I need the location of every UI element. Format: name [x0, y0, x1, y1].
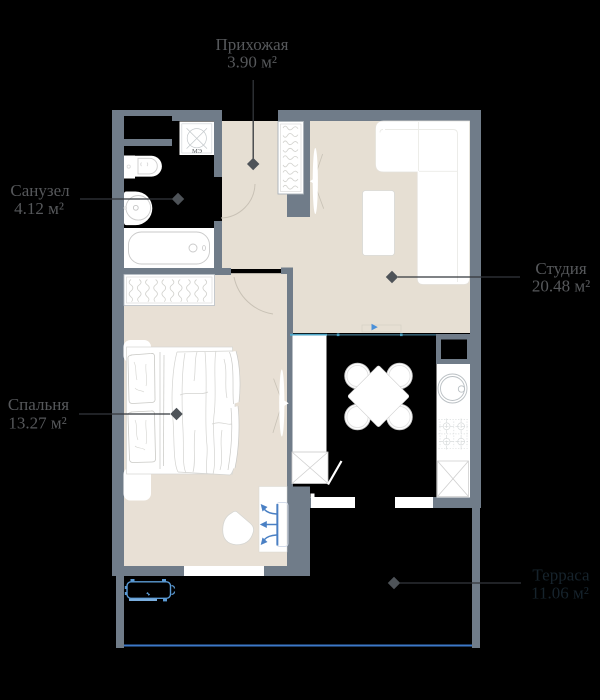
svg-text:Спальня: Спальня [8, 395, 69, 414]
svg-text:11.06 м²: 11.06 м² [531, 584, 589, 603]
svg-text:Санузел: Санузел [10, 181, 70, 200]
svg-text:13.27 м²: 13.27 м² [8, 414, 66, 433]
svg-text:3.90 м²: 3.90 м² [227, 53, 277, 72]
svg-text:20.48 м²: 20.48 м² [532, 277, 590, 296]
svg-text:Прихожая: Прихожая [216, 35, 289, 54]
svg-text:Терраса: Терраса [532, 566, 590, 585]
svg-text:МЭ: МЭ [192, 148, 203, 155]
svg-text:Студия: Студия [535, 259, 586, 278]
svg-text:4.12 м²: 4.12 м² [14, 199, 64, 218]
